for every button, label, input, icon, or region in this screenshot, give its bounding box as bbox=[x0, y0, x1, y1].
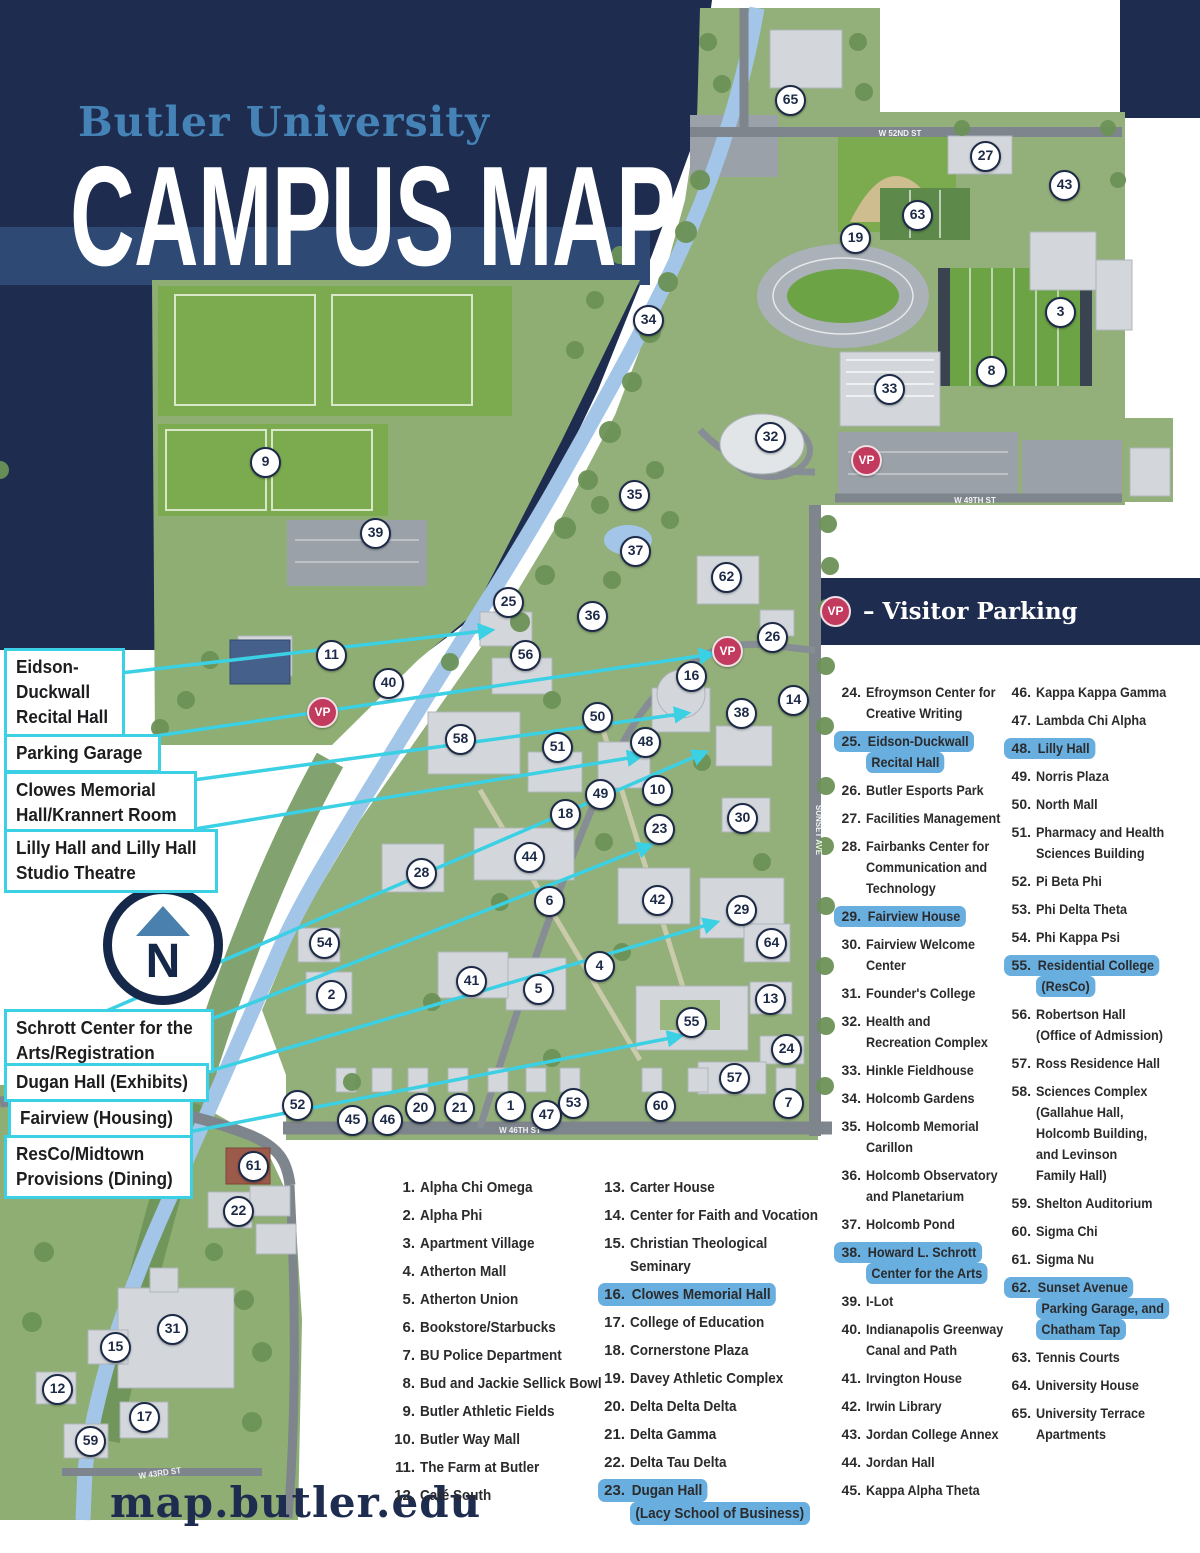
legend-item-label: Dugan Hall bbox=[630, 1479, 708, 1502]
legend-item-number: 13. bbox=[598, 1176, 630, 1199]
legend-item: 12.Café South bbox=[388, 1484, 602, 1507]
map-marker-53: 53 bbox=[558, 1088, 589, 1119]
legend-item-label: Jordan Hall bbox=[866, 1452, 935, 1473]
street-label: W 49TH ST bbox=[954, 496, 996, 505]
map-marker-63: 63 bbox=[902, 200, 933, 231]
map-marker-65: 65 bbox=[775, 85, 806, 116]
legend-item-label: Canal and Path bbox=[866, 1340, 957, 1361]
map-marker-40: 40 bbox=[373, 668, 404, 699]
legend-item-number: 45. bbox=[834, 1480, 866, 1501]
legend-item: 26.Butler Esports Park bbox=[834, 780, 1010, 801]
legend-item-label: Communication and bbox=[866, 857, 987, 878]
legend-item-number: 8. bbox=[388, 1372, 420, 1395]
legend-item: 47.Lambda Chi Alpha bbox=[1004, 710, 1198, 731]
legend-item-label: Pharmacy and Health bbox=[1036, 822, 1164, 843]
street-label: W 52ND ST bbox=[879, 129, 922, 138]
legend-item-number: 22. bbox=[598, 1451, 630, 1474]
legend-item-number: 51. bbox=[1004, 822, 1036, 843]
legend-item: 11.The Farm at Butler bbox=[388, 1456, 602, 1479]
map-marker-9: 9 bbox=[250, 447, 281, 478]
map-marker-56: 56 bbox=[510, 640, 541, 671]
legend-item-number: 43. bbox=[834, 1424, 866, 1445]
map-marker-36: 36 bbox=[577, 601, 608, 632]
legend-item-label: (Lacy School of Business) bbox=[630, 1502, 810, 1525]
map-marker-44: 44 bbox=[514, 842, 545, 873]
map-marker-32: 32 bbox=[755, 422, 786, 453]
legend-item-label: Creative Writing bbox=[866, 703, 962, 724]
visitor-parking-label: – Visitor Parking bbox=[863, 598, 1078, 625]
legend-item: 40.Indianapolis GreenwayCanal and Path bbox=[834, 1319, 1010, 1361]
legend-item-label: Phi Delta Theta bbox=[1036, 899, 1127, 920]
legend-item-number: 58. bbox=[1004, 1081, 1036, 1102]
callout-dugan-hall: Dugan Hall (Exhibits) bbox=[4, 1063, 209, 1102]
map-marker-25: 25 bbox=[493, 587, 524, 618]
legend-item-number: 3. bbox=[388, 1232, 420, 1255]
legend-item-number: 57. bbox=[1004, 1053, 1036, 1074]
legend-item: 2.Alpha Phi bbox=[388, 1204, 602, 1227]
map-marker-21: 21 bbox=[444, 1093, 475, 1124]
legend-item-label: Robertson Hall bbox=[1036, 1004, 1126, 1025]
map-marker-28: 28 bbox=[406, 858, 437, 889]
legend-item-number: 10. bbox=[388, 1428, 420, 1451]
legend-item-number: 36. bbox=[834, 1165, 866, 1186]
map-marker-46: 46 bbox=[372, 1105, 403, 1136]
legend-item-label: Center bbox=[866, 955, 906, 976]
legend-item-number: 7. bbox=[388, 1344, 420, 1367]
legend-item-label: Technology bbox=[866, 878, 936, 899]
map-marker-6: 6 bbox=[534, 886, 565, 917]
legend-item-label: Center for Faith and Vocation bbox=[630, 1204, 818, 1227]
map-marker-7: 7 bbox=[773, 1088, 804, 1119]
legend-item: 42.Irwin Library bbox=[834, 1396, 1010, 1417]
legend-item-number: 23. bbox=[598, 1479, 630, 1502]
callout-label: Parking Garage bbox=[16, 741, 142, 766]
map-marker-29: 29 bbox=[726, 895, 757, 926]
street-label: SUNSET AVE bbox=[814, 805, 823, 856]
map-marker-11: 11 bbox=[316, 640, 347, 671]
legend-item-label: Holcomb Observatory bbox=[866, 1165, 998, 1186]
legend-item-label: Cornerstone Plaza bbox=[630, 1339, 749, 1362]
legend-item-label: Seminary bbox=[630, 1255, 691, 1278]
legend-item-number: 31. bbox=[834, 983, 866, 1004]
legend-item: 64.University House bbox=[1004, 1375, 1198, 1396]
legend-item-label: I-Lot bbox=[866, 1291, 893, 1312]
callout-label: Studio Theatre bbox=[16, 861, 197, 886]
legend-item-number: 62. bbox=[1004, 1277, 1036, 1298]
legend-item-label: Apartment Village bbox=[420, 1232, 535, 1255]
legend-item: 28.Fairbanks Center forCommunication and… bbox=[834, 836, 1010, 899]
legend-item-number: 38. bbox=[834, 1242, 866, 1263]
legend-item-label: Holcomb Memorial bbox=[866, 1116, 979, 1137]
legend-item-label: Bud and Jackie Sellick Bowl bbox=[420, 1372, 602, 1395]
map-marker-31: 31 bbox=[157, 1314, 188, 1345]
legend-item-number: 27. bbox=[834, 808, 866, 829]
map-marker-8: 8 bbox=[976, 356, 1007, 387]
legend-item: 23.Dugan Hall(Lacy School of Business) bbox=[598, 1479, 832, 1525]
map-marker-24: 24 bbox=[771, 1034, 802, 1065]
map-marker-30: 30 bbox=[727, 803, 758, 834]
legend-item-number: 65. bbox=[1004, 1403, 1036, 1424]
legend-item: 14.Center for Faith and Vocation bbox=[598, 1204, 832, 1227]
callout-label: Recital Hall bbox=[16, 705, 108, 730]
legend-item-label: Health and bbox=[866, 1011, 930, 1032]
legend-item: 10.Butler Way Mall bbox=[388, 1428, 602, 1451]
legend-item-label: Delta Delta Delta bbox=[630, 1395, 737, 1418]
map-marker-2: 2 bbox=[316, 980, 347, 1011]
legend-item-label: Fairbanks Center for bbox=[866, 836, 989, 857]
legend-item-label: Delta Tau Delta bbox=[630, 1451, 727, 1474]
legend-item-number: 40. bbox=[834, 1319, 866, 1340]
callout-label: Hall/Krannert Room bbox=[16, 803, 177, 828]
legend-item-number: 9. bbox=[388, 1400, 420, 1423]
legend-item: 22.Delta Tau Delta bbox=[598, 1451, 832, 1474]
legend-item-number: 48. bbox=[1004, 738, 1036, 759]
legend-column-4: 46.Kappa Kappa Gamma47.Lambda Chi Alpha4… bbox=[1004, 682, 1198, 1452]
map-marker-45: 45 bbox=[337, 1105, 368, 1136]
legend-item: 43.Jordan College Annex bbox=[834, 1424, 1010, 1445]
legend-item-number: 26. bbox=[834, 780, 866, 801]
legend-item: 35.Holcomb MemorialCarillon bbox=[834, 1116, 1010, 1158]
legend-item-label: University House bbox=[1036, 1375, 1139, 1396]
legend-item-number: 34. bbox=[834, 1088, 866, 1109]
map-marker-48: 48 bbox=[630, 727, 661, 758]
legend-item-number: 21. bbox=[598, 1423, 630, 1446]
legend-item-number: 56. bbox=[1004, 1004, 1036, 1025]
legend-item-number: 64. bbox=[1004, 1375, 1036, 1396]
map-marker-17: 17 bbox=[129, 1402, 160, 1433]
callout-fairview-housing: Fairview (Housing) bbox=[8, 1099, 193, 1138]
legend-item: 32.Health andRecreation Complex bbox=[834, 1011, 1010, 1053]
legend-item: 3.Apartment Village bbox=[388, 1232, 602, 1255]
legend-item-number: 47. bbox=[1004, 710, 1036, 731]
legend-item-label: and Planetarium bbox=[866, 1186, 964, 1207]
legend-item-number: 28. bbox=[834, 836, 866, 857]
legend-item-number: 20. bbox=[598, 1395, 630, 1418]
visitor-parking-marker: VP bbox=[851, 445, 882, 476]
compass-letter: N bbox=[146, 934, 181, 990]
callout-lilly-hall: Lilly Hall and Lilly HallStudio Theatre bbox=[4, 829, 218, 893]
map-marker-5: 5 bbox=[523, 974, 554, 1005]
legend-item-label: Howard L. Schrott bbox=[866, 1242, 982, 1263]
legend-item: 65.University TerraceApartments bbox=[1004, 1403, 1198, 1445]
map-marker-61: 61 bbox=[238, 1151, 269, 1182]
map-marker-35: 35 bbox=[619, 480, 650, 511]
legend-item: 18.Cornerstone Plaza bbox=[598, 1339, 832, 1362]
legend-item-label: Holcomb Gardens bbox=[866, 1088, 975, 1109]
map-marker-64: 64 bbox=[756, 928, 787, 959]
visitor-parking-legend: VP – Visitor Parking bbox=[820, 596, 1078, 627]
map-marker-54: 54 bbox=[309, 928, 340, 959]
legend-item: 36.Holcomb Observatoryand Planetarium bbox=[834, 1165, 1010, 1207]
legend-item-label: Sigma Chi bbox=[1036, 1221, 1098, 1242]
map-marker-18: 18 bbox=[550, 799, 581, 830]
legend-item-number: 61. bbox=[1004, 1249, 1036, 1270]
legend-item: 9.Butler Athletic Fields bbox=[388, 1400, 602, 1423]
legend-item: 58.Sciences Complex(Gallahue Hall,Holcom… bbox=[1004, 1081, 1198, 1186]
map-marker-43: 43 bbox=[1049, 170, 1080, 201]
legend-item-number: 29. bbox=[834, 906, 866, 927]
map-marker-38: 38 bbox=[726, 698, 757, 729]
legend-item-label: Café South bbox=[420, 1484, 491, 1507]
legend-item-label: Atherton Union bbox=[420, 1288, 518, 1311]
legend-item-label: Sigma Nu bbox=[1036, 1249, 1094, 1270]
callout-clowes-memorial-hall: Clowes MemorialHall/Krannert Room bbox=[4, 771, 197, 835]
legend-item-number: 19. bbox=[598, 1367, 630, 1390]
legend-item-number: 53. bbox=[1004, 899, 1036, 920]
map-marker-1: 1 bbox=[495, 1091, 526, 1122]
legend-item-number: 37. bbox=[834, 1214, 866, 1235]
legend-item-label: Sunset Avenue bbox=[1036, 1277, 1133, 1298]
legend-item-label: BU Police Department bbox=[420, 1344, 562, 1367]
map-marker-13: 13 bbox=[755, 984, 786, 1015]
legend-item: 21.Delta Gamma bbox=[598, 1423, 832, 1446]
legend-item-label: Butler Athletic Fields bbox=[420, 1400, 555, 1423]
legend-item-label: Parking Garage, and bbox=[1036, 1298, 1169, 1319]
legend-column-3: 24.Efroymson Center forCreative Writing2… bbox=[834, 682, 1010, 1508]
legend-item: 31.Founder's College bbox=[834, 983, 1010, 1004]
street-label: W 46TH ST bbox=[499, 1126, 541, 1135]
legend-item: 51.Pharmacy and HealthSciences Building bbox=[1004, 822, 1198, 864]
legend-item-label: The Farm at Butler bbox=[420, 1456, 539, 1479]
legend-item: 34.Holcomb Gardens bbox=[834, 1088, 1010, 1109]
legend-item-label: Recital Hall bbox=[866, 752, 945, 773]
legend-item-label: Lambda Chi Alpha bbox=[1036, 710, 1146, 731]
callout-label: Schrott Center for the bbox=[16, 1016, 193, 1041]
north-arrow-icon bbox=[136, 906, 190, 936]
map-marker-49: 49 bbox=[585, 779, 616, 810]
legend-item-label: Kappa Kappa Gamma bbox=[1036, 682, 1166, 703]
map-marker-14: 14 bbox=[778, 685, 809, 716]
legend-item-label: Clowes Memorial Hall bbox=[630, 1283, 776, 1306]
legend-item-number: 2. bbox=[388, 1204, 420, 1227]
legend-item-number: 41. bbox=[834, 1368, 866, 1389]
legend-item-number: 11. bbox=[388, 1456, 420, 1479]
legend-item: 15.Christian TheologicalSeminary bbox=[598, 1232, 832, 1278]
legend-item: 13.Carter House bbox=[598, 1176, 832, 1199]
legend-item: 41.Irvington House bbox=[834, 1368, 1010, 1389]
map-marker-16: 16 bbox=[676, 661, 707, 692]
legend-item-label: Phi Kappa Psi bbox=[1036, 927, 1120, 948]
legend-item-number: 60. bbox=[1004, 1221, 1036, 1242]
legend-item-label: Sciences Complex bbox=[1036, 1081, 1147, 1102]
legend-column-1: 1.Alpha Chi Omega2.Alpha Phi3.Apartment … bbox=[388, 1176, 602, 1512]
legend-item-label: Jordan College Annex bbox=[866, 1424, 999, 1445]
legend-item: 8.Bud and Jackie Sellick Bowl bbox=[388, 1372, 602, 1395]
legend-item-number: 35. bbox=[834, 1116, 866, 1137]
map-marker-59: 59 bbox=[75, 1426, 106, 1457]
legend-item-label: Christian Theological bbox=[630, 1232, 767, 1255]
map-marker-52: 52 bbox=[282, 1090, 313, 1121]
legend-item-label: Tennis Courts bbox=[1036, 1347, 1120, 1368]
map-marker-20: 20 bbox=[405, 1093, 436, 1124]
map-marker-42: 42 bbox=[642, 885, 673, 916]
legend-item: 17.College of Education bbox=[598, 1311, 832, 1334]
legend-item-number: 39. bbox=[834, 1291, 866, 1312]
map-marker-62: 62 bbox=[711, 562, 742, 593]
legend-item-number: 33. bbox=[834, 1060, 866, 1081]
legend-item: 19.Davey Athletic Complex bbox=[598, 1367, 832, 1390]
legend-item: 1.Alpha Chi Omega bbox=[388, 1176, 602, 1199]
legend-item-number: 4. bbox=[388, 1260, 420, 1283]
legend-item: 4.Atherton Mall bbox=[388, 1260, 602, 1283]
legend-item-label: Delta Gamma bbox=[630, 1423, 716, 1446]
page-title: CAMPUS MAP bbox=[70, 146, 675, 288]
legend-item: 5.Atherton Union bbox=[388, 1288, 602, 1311]
legend-item: 20.Delta Delta Delta bbox=[598, 1395, 832, 1418]
legend-item-label: Pi Beta Phi bbox=[1036, 871, 1102, 892]
legend-item: 24.Efroymson Center forCreative Writing bbox=[834, 682, 1010, 724]
legend-item: 6.Bookstore/Starbucks bbox=[388, 1316, 602, 1339]
callout-label: Fairview (Housing) bbox=[20, 1106, 173, 1131]
legend-item-label: Facilities Management bbox=[866, 808, 1000, 829]
legend-item-label: North Mall bbox=[1036, 794, 1098, 815]
legend-item-label: Fairview Welcome bbox=[866, 934, 975, 955]
legend-item-label: Ross Residence Hall bbox=[1036, 1053, 1160, 1074]
legend-item-number: 24. bbox=[834, 682, 866, 703]
legend-item: 30.Fairview WelcomeCenter bbox=[834, 934, 1010, 976]
legend-item-number: 63. bbox=[1004, 1347, 1036, 1368]
legend-item-number: 50. bbox=[1004, 794, 1036, 815]
map-marker-15: 15 bbox=[100, 1332, 131, 1363]
map-marker-58: 58 bbox=[445, 724, 476, 755]
legend-item: 62.Sunset AvenueParking Garage, andChath… bbox=[1004, 1277, 1198, 1340]
legend-item-number: 54. bbox=[1004, 927, 1036, 948]
legend-item: 39.I-Lot bbox=[834, 1291, 1010, 1312]
legend-item-label: Founder's College bbox=[866, 983, 975, 1004]
map-marker-3: 3 bbox=[1045, 297, 1076, 328]
legend-item: 37.Holcomb Pond bbox=[834, 1214, 1010, 1235]
legend-item-label: Carillon bbox=[866, 1137, 913, 1158]
map-marker-51: 51 bbox=[542, 732, 573, 763]
legend-item-label: Bookstore/Starbucks bbox=[420, 1316, 556, 1339]
legend-item-label: Recreation Complex bbox=[866, 1032, 988, 1053]
vp-badge-icon: VP bbox=[820, 596, 851, 627]
legend-item: 52.Pi Beta Phi bbox=[1004, 871, 1198, 892]
callout-label: Lilly Hall and Lilly Hall bbox=[16, 836, 197, 861]
map-marker-12: 12 bbox=[42, 1374, 73, 1405]
map-marker-60: 60 bbox=[645, 1091, 676, 1122]
map-marker-23: 23 bbox=[644, 814, 675, 845]
legend-item: 16.Clowes Memorial Hall bbox=[598, 1283, 832, 1306]
legend-item-label: University Terrace bbox=[1036, 1403, 1145, 1424]
legend-item-number: 6. bbox=[388, 1316, 420, 1339]
legend-item-number: 46. bbox=[1004, 682, 1036, 703]
legend-item-label: Holcomb Pond bbox=[866, 1214, 955, 1235]
legend-item: 27.Facilities Management bbox=[834, 808, 1010, 829]
legend-item-label: (Office of Admission) bbox=[1036, 1025, 1163, 1046]
legend-item: 57.Ross Residence Hall bbox=[1004, 1053, 1198, 1074]
legend-item-label: Family Hall) bbox=[1036, 1165, 1107, 1186]
legend-item: 53.Phi Delta Theta bbox=[1004, 899, 1198, 920]
callout-label: Clowes Memorial bbox=[16, 778, 177, 803]
legend-item: 50.North Mall bbox=[1004, 794, 1198, 815]
legend-item: 29.Fairview House bbox=[834, 906, 1010, 927]
callout-parking-garage: Parking Garage bbox=[4, 734, 161, 773]
legend-item-number: 17. bbox=[598, 1311, 630, 1334]
legend-item-label: Holcomb Building, bbox=[1036, 1123, 1147, 1144]
legend-column-2: 13.Carter House14.Center for Faith and V… bbox=[598, 1176, 832, 1530]
map-marker-22: 22 bbox=[223, 1196, 254, 1227]
legend-item-number: 49. bbox=[1004, 766, 1036, 787]
legend-item-number: 15. bbox=[598, 1232, 630, 1255]
map-marker-57: 57 bbox=[719, 1063, 750, 1094]
callout-eidson-duckwall-recital-hall: Eidson-DuckwallRecital Hall bbox=[4, 648, 125, 737]
legend-item: 46.Kappa Kappa Gamma bbox=[1004, 682, 1198, 703]
legend-item: 25.Eidson-DuckwallRecital Hall bbox=[834, 731, 1010, 773]
legend-item-label: Lilly Hall bbox=[1036, 738, 1095, 759]
legend-item-label: Sciences Building bbox=[1036, 843, 1145, 864]
legend-item: 55.Residential College(ResCo) bbox=[1004, 955, 1198, 997]
map-marker-26: 26 bbox=[757, 622, 788, 653]
visitor-parking-marker: VP bbox=[712, 636, 743, 667]
callout-resco-midtown: ResCo/MidtownProvisions (Dining) bbox=[4, 1135, 193, 1199]
map-marker-39: 39 bbox=[360, 518, 391, 549]
map-marker-34: 34 bbox=[633, 305, 664, 336]
callout-label: Eidson- bbox=[16, 655, 108, 680]
map-marker-19: 19 bbox=[840, 223, 871, 254]
legend-item: 48.Lilly Hall bbox=[1004, 738, 1198, 759]
callout-label: Provisions (Dining) bbox=[16, 1167, 173, 1192]
legend-item-label: Shelton Auditorium bbox=[1036, 1193, 1152, 1214]
legend-item: 45.Kappa Alpha Theta bbox=[834, 1480, 1010, 1501]
map-marker-50: 50 bbox=[582, 702, 613, 733]
legend-item-number: 5. bbox=[388, 1288, 420, 1311]
legend-item-label: Atherton Mall bbox=[420, 1260, 506, 1283]
legend-item-number: 25. bbox=[834, 731, 866, 752]
legend-item-label: and Levinson bbox=[1036, 1144, 1117, 1165]
legend-item-label: (ResCo) bbox=[1036, 976, 1095, 997]
map-marker-10: 10 bbox=[642, 775, 673, 806]
legend-item: 44.Jordan Hall bbox=[834, 1452, 1010, 1473]
legend-item-label: Chatham Tap bbox=[1036, 1319, 1126, 1340]
legend-item: 63.Tennis Courts bbox=[1004, 1347, 1198, 1368]
legend-item: 59.Shelton Auditorium bbox=[1004, 1193, 1198, 1214]
legend-item-label: Residential College bbox=[1036, 955, 1159, 976]
legend-item: 54.Phi Kappa Psi bbox=[1004, 927, 1198, 948]
legend-item: 61.Sigma Nu bbox=[1004, 1249, 1198, 1270]
legend-item-label: Alpha Chi Omega bbox=[420, 1176, 533, 1199]
legend-item-label: Hinkle Fieldhouse bbox=[866, 1060, 974, 1081]
legend-item-label: Alpha Phi bbox=[420, 1204, 482, 1227]
visitor-parking-marker: VP bbox=[307, 697, 338, 728]
map-marker-27: 27 bbox=[970, 141, 1001, 172]
legend-item-label: Apartments bbox=[1036, 1424, 1106, 1445]
callout-label: Duckwall bbox=[16, 680, 108, 705]
legend-item-label: Eidson-Duckwall bbox=[866, 731, 974, 752]
compass-north-icon: N bbox=[103, 885, 223, 1005]
legend-item-number: 42. bbox=[834, 1396, 866, 1417]
legend-item: 38.Howard L. SchrottCenter for the Arts bbox=[834, 1242, 1010, 1284]
legend-item-label: Irwin Library bbox=[866, 1396, 942, 1417]
legend-item-number: 16. bbox=[598, 1283, 630, 1306]
map-marker-55: 55 bbox=[676, 1007, 707, 1038]
map-marker-37: 37 bbox=[620, 536, 651, 567]
callout-label: ResCo/Midtown bbox=[16, 1142, 173, 1167]
legend-item-number: 12. bbox=[388, 1484, 420, 1507]
legend-item-label: Norris Plaza bbox=[1036, 766, 1109, 787]
legend-item-label: College of Education bbox=[630, 1311, 764, 1334]
map-marker-41: 41 bbox=[456, 966, 487, 997]
legend-item-label: Center for the Arts bbox=[866, 1263, 988, 1284]
legend-item-label: (Gallahue Hall, bbox=[1036, 1102, 1124, 1123]
legend-item-number: 1. bbox=[388, 1176, 420, 1199]
legend-item-number: 55. bbox=[1004, 955, 1036, 976]
legend-item-number: 14. bbox=[598, 1204, 630, 1227]
legend-item: 60.Sigma Chi bbox=[1004, 1221, 1198, 1242]
legend-item-label: Davey Athletic Complex bbox=[630, 1367, 783, 1390]
legend-item-label: Fairview House bbox=[866, 906, 966, 927]
legend-item-number: 18. bbox=[598, 1339, 630, 1362]
